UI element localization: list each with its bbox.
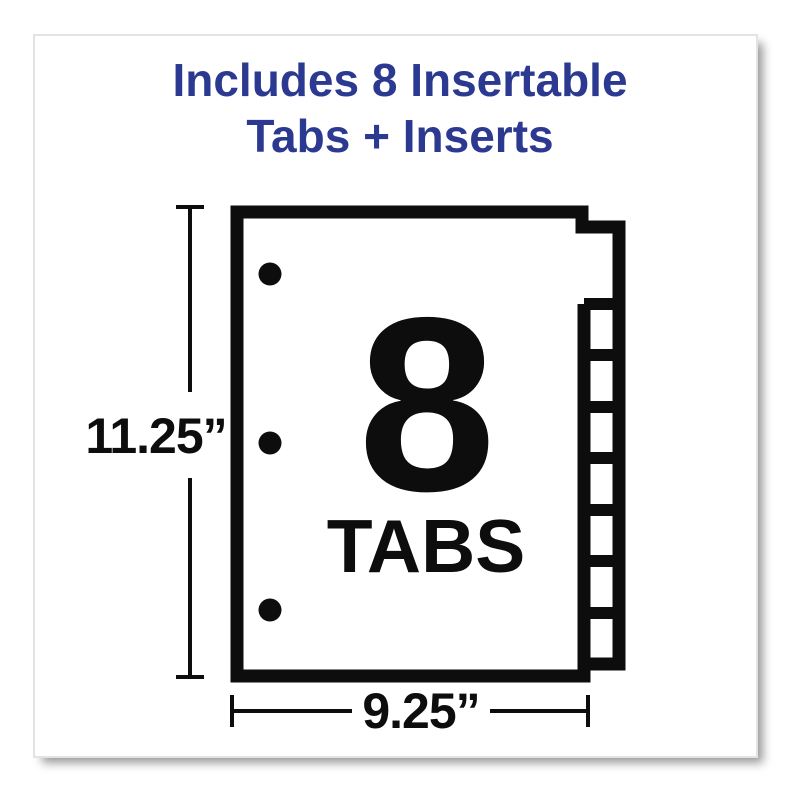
punch-hole [259,432,282,455]
width-dimension-label: 9.25” [362,683,479,739]
punch-hole [259,599,282,622]
tab-count-caption: TABS [327,504,526,588]
height-dimension-label: 11.25” [85,408,226,464]
punch-hole [259,263,282,286]
divider-sheet-diagram: 8 TABS 11.25” 9.25” [0,0,800,800]
tab-count-number: 8 [358,265,496,543]
